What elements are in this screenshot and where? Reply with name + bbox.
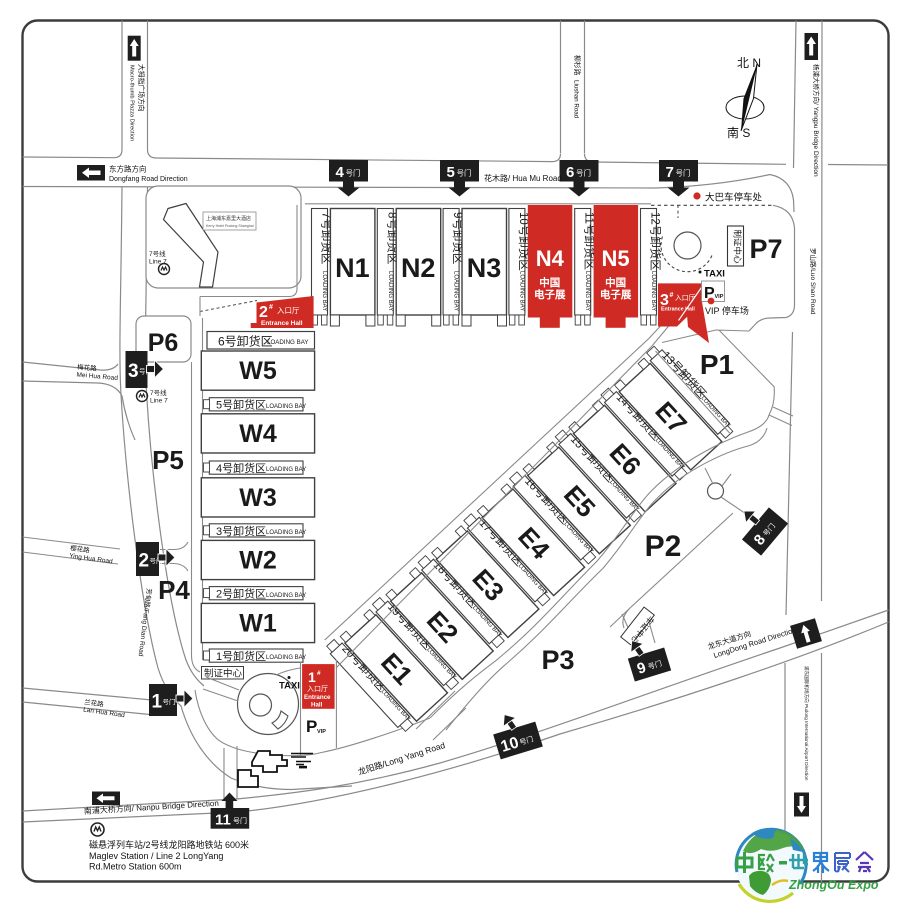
svg-text:LOADING BAY: LOADING BAY <box>387 271 393 311</box>
svg-text:Kerry Hotel Pudong Shanghai: Kerry Hotel Pudong Shanghai <box>206 224 254 228</box>
svg-text:LOADING BAY: LOADING BAY <box>266 655 306 661</box>
svg-text:W4: W4 <box>239 420 277 448</box>
svg-text:W1: W1 <box>239 609 277 637</box>
svg-text:4号卸货区: 4号卸货区 <box>216 461 266 475</box>
svg-text:Dongfang Road Direction: Dongfang Road Direction <box>109 176 188 183</box>
svg-text:W2: W2 <box>239 546 277 574</box>
svg-text:号门: 号门 <box>163 697 176 706</box>
svg-text:Hall: Hall <box>311 702 323 709</box>
svg-text:电子展: 电子展 <box>534 288 566 301</box>
svg-text:N4: N4 <box>536 246 565 271</box>
svg-text:LOADING BAY: LOADING BAY <box>266 530 306 536</box>
svg-text:P4: P4 <box>158 575 190 605</box>
svg-text:号门: 号门 <box>676 169 691 178</box>
svg-text:Entrance Hall: Entrance Hall <box>661 307 695 313</box>
svg-text:6号卸货区: 6号卸货区 <box>218 334 273 349</box>
svg-text:7号线: 7号线 <box>150 388 167 397</box>
svg-text:5号卸货区: 5号卸货区 <box>216 398 266 412</box>
svg-text:磁悬浮列车站/2号线龙阳路地铁站 600米: 磁悬浮列车站/2号线龙阳路地铁站 600米 <box>89 839 249 850</box>
svg-text:P3: P3 <box>541 645 574 675</box>
svg-text:N3: N3 <box>467 253 502 283</box>
svg-text:4: 4 <box>336 164 345 181</box>
svg-text:P6: P6 <box>148 329 179 357</box>
svg-text:Line 7: Line 7 <box>149 259 167 266</box>
svg-text:LOADING BAY: LOADING BAY <box>266 404 306 410</box>
svg-text:ZhongOu Expo: ZhongOu Expo <box>788 878 879 892</box>
svg-text:Rd.Metro Station 600m: Rd.Metro Station 600m <box>89 862 182 872</box>
svg-text:7: 7 <box>666 164 674 181</box>
svg-text:东方路方向: 东方路方向 <box>109 164 147 174</box>
svg-text:P1: P1 <box>700 349 734 380</box>
svg-text:2号卸货区: 2号卸货区 <box>216 587 266 601</box>
svg-text:VIP: VIP <box>715 294 724 300</box>
svg-text:制证中心: 制证中心 <box>733 230 743 265</box>
svg-text:#: # <box>269 304 273 311</box>
svg-text:P7: P7 <box>749 234 782 264</box>
svg-text:大拇指广场方向: 大拇指广场方向 <box>137 64 146 112</box>
svg-text:11: 11 <box>215 812 231 829</box>
svg-text:N1: N1 <box>335 253 370 283</box>
svg-text:#: # <box>670 292 674 299</box>
svg-text:P2: P2 <box>645 530 682 563</box>
svg-text:Entrance: Entrance <box>304 694 331 701</box>
svg-text:入口厅: 入口厅 <box>307 685 328 693</box>
svg-text:北 N: 北 N <box>737 56 761 70</box>
svg-text:12号卸货区: 12号卸货区 <box>649 212 663 271</box>
svg-text:LOADING BAY: LOADING BAY <box>650 271 656 311</box>
svg-text:Line 7: Line 7 <box>150 398 168 405</box>
svg-text:VIP 停车场: VIP 停车场 <box>705 305 749 316</box>
svg-text:W5: W5 <box>239 357 277 385</box>
svg-text:制证中心: 制证中心 <box>204 668 243 680</box>
svg-text:6: 6 <box>566 164 574 181</box>
svg-text:2: 2 <box>139 551 150 572</box>
svg-text:入口厅: 入口厅 <box>277 306 300 315</box>
svg-text:LOADING BAY: LOADING BAY <box>321 271 327 311</box>
svg-text:1号卸货区: 1号卸货区 <box>216 649 266 663</box>
svg-text:1: 1 <box>152 692 163 713</box>
svg-text:Liushan Road: Liushan Road <box>573 80 580 119</box>
svg-text:Entrance Hall: Entrance Hall <box>261 320 303 327</box>
svg-text:入口厅: 入口厅 <box>675 294 696 302</box>
svg-text:花木路/ Hua Mu Road: 花木路/ Hua Mu Road <box>484 173 562 183</box>
svg-text:1: 1 <box>308 669 316 685</box>
svg-text:中国: 中国 <box>605 276 626 289</box>
svg-text:7号线: 7号线 <box>149 249 166 258</box>
svg-text:LOADING BAY: LOADING BAY <box>266 593 306 599</box>
svg-text:VIP: VIP <box>317 729 326 735</box>
svg-text:电子展: 电子展 <box>600 288 632 301</box>
svg-text:号门: 号门 <box>457 169 472 178</box>
svg-text:LOADING BAY: LOADING BAY <box>453 271 459 311</box>
svg-text:号门: 号门 <box>576 169 591 178</box>
svg-text:上海浦东嘉里大酒店: 上海浦东嘉里大酒店 <box>206 215 251 222</box>
svg-text:P5: P5 <box>152 445 184 475</box>
svg-text:南 S: 南 S <box>727 125 750 140</box>
svg-text:LOADING BAY: LOADING BAY <box>584 271 590 311</box>
svg-text:TAXI: TAXI <box>704 269 725 280</box>
svg-text:W3: W3 <box>239 484 277 512</box>
svg-text:5: 5 <box>447 164 455 181</box>
svg-text:LOADING BAY: LOADING BAY <box>267 339 309 346</box>
svg-text:杨浦大桥方向/ Yangpu Bridge Directio: 杨浦大桥方向/ Yangpu Bridge Direction <box>812 64 821 177</box>
svg-text:浦东国际机场方向 Pudong International: 浦东国际机场方向 Pudong International Airport Di… <box>803 666 810 781</box>
svg-text:P: P <box>306 717 317 736</box>
svg-text:#: # <box>317 670 321 677</box>
svg-text:N2: N2 <box>401 253 436 283</box>
svg-text:2: 2 <box>259 304 268 321</box>
svg-text:中国: 中国 <box>539 276 560 289</box>
svg-text:柳杉路: 柳杉路 <box>573 55 582 76</box>
svg-text:Maglev Station / Line 2 LongYa: Maglev Station / Line 2 LongYang <box>89 851 223 861</box>
svg-text:3: 3 <box>128 361 139 382</box>
svg-text:N5: N5 <box>602 246 630 271</box>
svg-text:LOADING BAY: LOADING BAY <box>518 271 524 311</box>
svg-text:罗山路/Luo Shan Road: 罗山路/Luo Shan Road <box>809 248 818 315</box>
svg-text:LOADING BAY: LOADING BAY <box>266 467 306 473</box>
svg-text:3号卸货区: 3号卸货区 <box>216 524 266 538</box>
svg-text:号门: 号门 <box>346 169 361 178</box>
svg-text:Macro-thumb Plazza Direction: Macro-thumb Plazza Direction <box>129 65 135 141</box>
svg-text:TAXI: TAXI <box>279 681 300 692</box>
svg-text:号门: 号门 <box>233 816 247 825</box>
svg-text:大巴车停车处: 大巴车停车处 <box>705 192 763 204</box>
